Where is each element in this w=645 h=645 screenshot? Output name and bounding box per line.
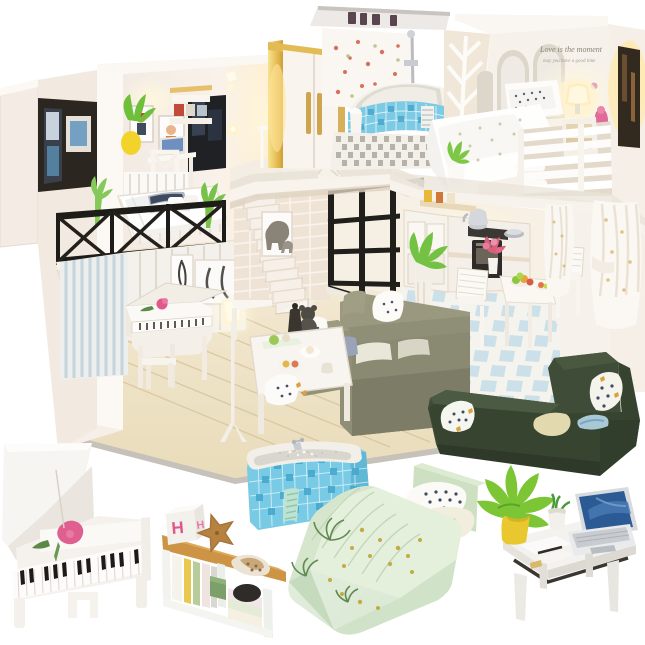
svg-text:H: H xyxy=(171,518,185,538)
svg-text:Love is the moment: Love is the moment xyxy=(539,45,603,54)
